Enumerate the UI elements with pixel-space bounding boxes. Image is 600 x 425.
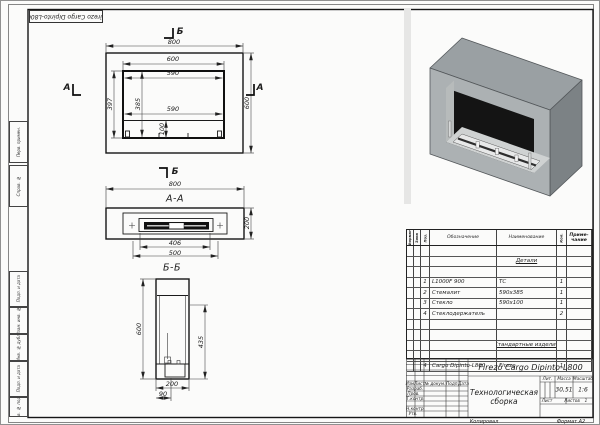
title-name-line2: сборка: [490, 397, 517, 406]
margin-stamp-label: Инв. № дубл.: [16, 334, 21, 361]
spec-col-name: Наименование: [497, 230, 557, 245]
dim-front-height: 600: [244, 97, 251, 109]
spec-table-row: 3Стекло590х1001: [407, 299, 592, 310]
margin-stamp: Взам. инв. №: [9, 307, 28, 334]
lit-label: Лит.: [543, 377, 553, 381]
top-stamp-text: Firezo Cargo Dipinto-L800: [29, 13, 103, 20]
col-sign: Подп.: [446, 381, 459, 385]
drawing-sheet: Firezo Cargo Dipinto-L800 Перв. примен. …: [0, 0, 600, 425]
burner-post: [476, 142, 479, 149]
spec-table-row: 1L1000F 900ТС1: [407, 278, 592, 289]
row-utv: Утв.: [409, 411, 418, 415]
title-name-line1: Технологическая: [470, 388, 538, 397]
dim-aa-tray: 500: [169, 249, 181, 256]
mass-label: Масса: [557, 377, 570, 381]
dim-aa-width: 800: [169, 181, 181, 188]
scale-label: Масштаб: [573, 377, 593, 381]
title-designation: Firezo Cargo Dipinto-L800: [468, 359, 593, 376]
burner-post: [495, 148, 498, 155]
margin-stamp-label: Перв. примен.: [16, 127, 21, 157]
dim-front-glass-h: 385: [135, 98, 142, 110]
top-stamp: Firezo Cargo Dipinto-L800: [29, 10, 103, 23]
margin-stamp-label: Инв. № подл.: [16, 397, 21, 417]
sheets-label: Листов: [564, 399, 580, 403]
spec-col-pos: Поз.: [421, 230, 430, 245]
col-date: Дата: [458, 381, 469, 385]
spec-header-row: Формат Зона Поз. Обозначение Наименовани…: [407, 230, 592, 246]
mass-value: 30,51: [555, 387, 572, 394]
spec-col-qty: Кол.: [557, 230, 567, 245]
format-label: Формат А2: [557, 419, 585, 425]
sheets-value: 1: [585, 399, 588, 403]
copy-label: Копировал: [470, 419, 499, 425]
margin-stamp: Инв. № дубл.: [9, 334, 28, 361]
spec-row-group: Детали: [407, 257, 592, 268]
spec-row-group: Стандартные изделия: [407, 341, 592, 352]
spec-col-designation: Обозначение: [430, 230, 497, 245]
dim-front-glass-w1: 590: [167, 70, 179, 77]
margin-stamp-label: Подп. и дата: [16, 275, 21, 302]
margin-stamp: Инв. № подл.: [9, 397, 28, 417]
dim-front-burner-h: 100: [159, 123, 166, 135]
margin-stamp: Подп. и дата: [9, 271, 28, 307]
section-letter-a-right: А: [257, 83, 264, 93]
sheet-label: Лист: [542, 399, 553, 403]
spec-row-empty: [407, 330, 592, 341]
dim-front-width: 800: [168, 39, 180, 46]
dim-front-inner-h: 397: [107, 98, 114, 110]
view-label-aa: А-А: [166, 194, 184, 205]
front-view: [73, 28, 254, 178]
dim-bb-height: 600: [136, 323, 143, 335]
spec-row-empty: [407, 267, 592, 278]
margin-stamp: Подп. и дата: [9, 361, 28, 397]
spec-table: Формат Зона Поз. Обозначение Наименовани…: [406, 229, 593, 359]
margin-stamp-label: Справ. №: [16, 176, 21, 196]
dim-aa-burner: 406: [169, 240, 181, 247]
dim-aa-depth: 200: [244, 217, 251, 229]
spec-col-zone: Зона: [414, 230, 421, 245]
spec-col-format: Формат: [407, 230, 414, 245]
margin-stamp: Справ. №: [9, 165, 28, 207]
margin-stamp-label: Взам. инв. №: [16, 307, 21, 334]
title-block: Firezo Cargo Dipinto-L800 Технологическа…: [406, 359, 593, 417]
section-letter-a-left: А: [64, 83, 71, 93]
wall-shade: [404, 8, 411, 204]
dim-front-glass-w2: 590: [167, 106, 179, 113]
dim-bb-offset: 90: [159, 391, 167, 398]
spec-row-empty: [407, 246, 592, 257]
isometric-view: [404, 8, 594, 204]
view-label-bb: Б-Б: [163, 263, 181, 274]
title-name: Технологическая сборка: [468, 376, 540, 417]
spec-row-empty: [407, 320, 592, 331]
glass-holder-right: [529, 153, 532, 169]
margin-stamp: Перв. примен.: [9, 121, 28, 163]
burner-post: [515, 155, 518, 162]
section-letter-b-bottom: Б: [172, 167, 179, 177]
section-letter-b-top: Б: [177, 27, 184, 37]
col-doc: № докум.: [425, 381, 446, 385]
margin-stamp-label: Подп. и дата: [16, 365, 21, 392]
row-tkontr: Т.контр.: [406, 396, 424, 400]
glass-holder-left: [449, 121, 452, 137]
dim-front-opening: 600: [167, 56, 179, 63]
dim-bb-front-h: 435: [198, 336, 205, 348]
spec-col-note: Приме-чание: [567, 230, 592, 245]
spec-table-row: 4Стеклодержатель2: [407, 309, 592, 320]
scale-value: 1:6: [578, 387, 588, 394]
spec-table-row: 2Стемалит590х3851: [407, 288, 592, 299]
dim-bb-depth: 200: [166, 380, 178, 387]
